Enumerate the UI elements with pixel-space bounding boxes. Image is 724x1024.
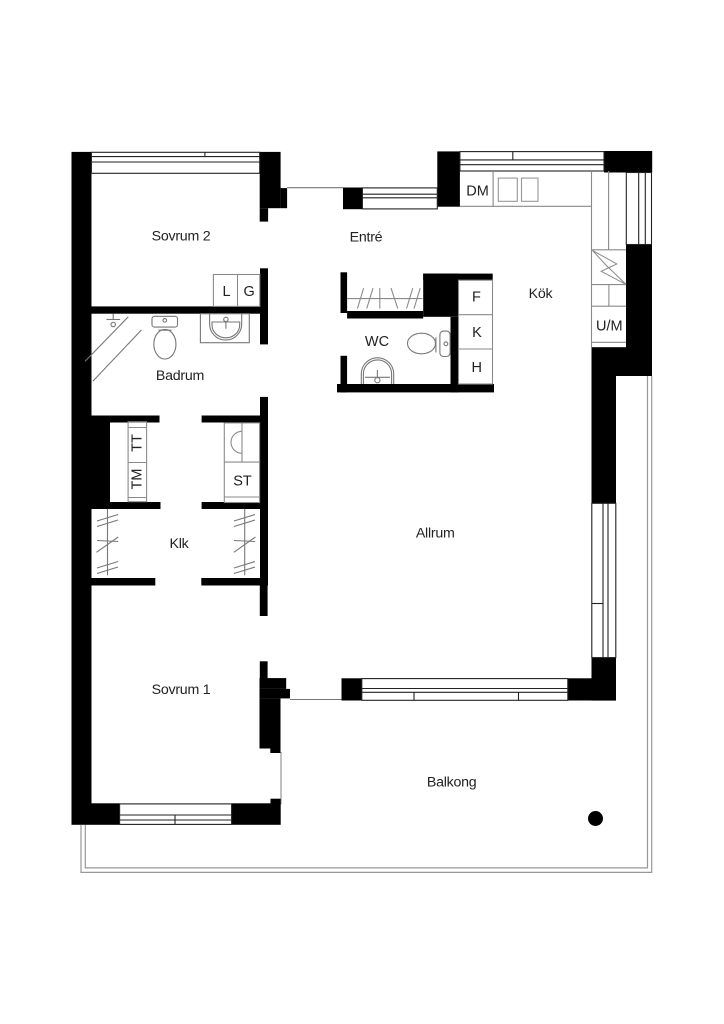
svg-text:Kök: Kök xyxy=(529,286,554,302)
svg-text:WC: WC xyxy=(365,334,389,350)
svg-text:Sovrum 2: Sovrum 2 xyxy=(152,229,211,245)
svg-text:Allrum: Allrum xyxy=(416,525,455,541)
svg-text:TM: TM xyxy=(130,469,146,490)
svg-text:Badrum: Badrum xyxy=(156,368,204,384)
svg-text:Klk: Klk xyxy=(170,536,190,552)
svg-text:L: L xyxy=(222,284,230,300)
svg-text:K: K xyxy=(472,325,482,341)
svg-text:H: H xyxy=(472,360,482,376)
svg-text:TT: TT xyxy=(130,434,146,452)
svg-text:Sovrum 1: Sovrum 1 xyxy=(152,682,211,698)
svg-text:DM: DM xyxy=(466,183,489,199)
svg-text:F: F xyxy=(472,290,481,306)
svg-text:Balkong: Balkong xyxy=(427,774,477,790)
svg-text:Entré: Entré xyxy=(350,230,383,246)
svg-text:U/M: U/M xyxy=(596,319,623,335)
svg-text:G: G xyxy=(243,284,254,300)
svg-text:ST: ST xyxy=(233,473,252,489)
